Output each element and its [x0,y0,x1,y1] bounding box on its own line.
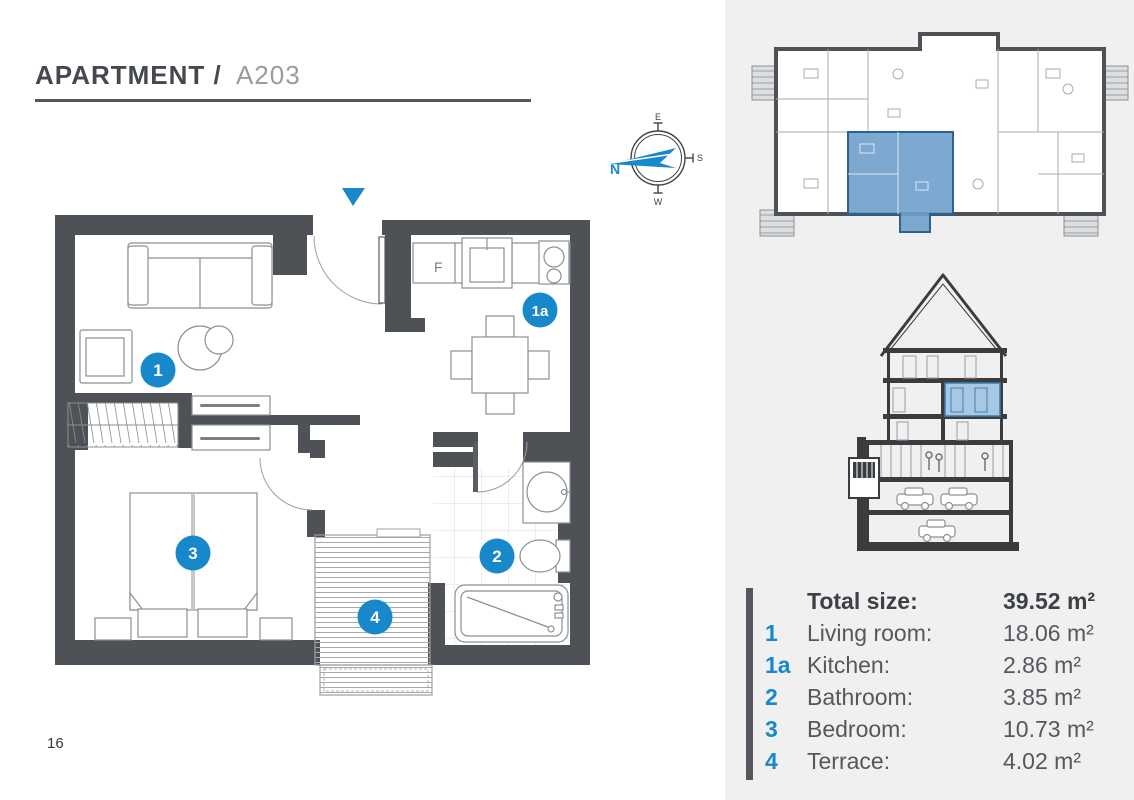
page-title-main: APARTMENT / [35,60,222,90]
armchair [80,330,132,383]
legend-label: Terrace: [807,748,1003,775]
building-floor-overview [748,14,1132,242]
brochure-page: APARTMENT / A203 16 E S W N [0,0,1134,800]
compass-west-label: W [654,197,663,207]
wardrobe [68,403,178,447]
badge-bathroom-label: 2 [492,547,501,566]
legend-num: 2 [765,684,807,711]
legend-row-bathroom: 2 Bathroom: 3.85 m² [765,684,1134,716]
page-title: APARTMENT / A203 [35,60,301,91]
legend-value: 10.73 m² [1003,716,1134,743]
bathtub [455,585,568,642]
page-number: 16 [47,735,64,752]
highlighted-unit [848,132,953,232]
stove [539,241,569,284]
parked-car [919,520,955,542]
legend-header-row: Total size: 39.52 m² [765,588,1134,620]
title-underline [35,99,531,102]
fridge-label: F [434,259,443,275]
nightstand-right [260,618,292,640]
legend-table: Total size: 39.52 m² 1 Living room: 18.0… [746,588,1134,780]
coffee-table-small [205,326,233,354]
terrace-threshold [377,529,420,537]
roof [881,275,1006,356]
building-cross-section [845,262,1030,560]
kitchen-sink [462,238,512,288]
legend-num: 1 [765,620,807,647]
bathroom-sink [523,462,570,523]
legend-label: Bedroom: [807,716,1003,743]
person-figure [982,453,988,471]
parked-car [897,488,933,510]
legend-row-kitchen: 1a Kitchen: 2.86 m² [765,652,1134,684]
toilet [520,540,570,572]
legend-num: 3 [765,716,807,743]
nightstand-left [95,618,131,640]
parked-car [941,488,977,510]
bedroom-door-arc [260,458,312,510]
page-title-unit: A203 [236,60,301,90]
entrance-marker-icon [342,188,365,206]
compass-east-label: E [655,112,661,122]
side-annex [849,458,879,498]
badge-terrace-label: 4 [370,608,380,627]
person-figure [926,452,932,470]
bathroom-door-leaf [473,442,478,492]
legend-label: Kitchen: [807,652,1003,679]
apartment-floor-plan: F [50,180,595,705]
dining-set [451,316,549,414]
legend-num: 1a [765,652,807,679]
legend-num: 4 [765,748,807,775]
legend-value: 18.06 m² [1003,620,1134,647]
legend-value: 2.86 m² [1003,652,1134,679]
sofa [128,243,272,308]
legend-value: 4.02 m² [1003,748,1134,775]
highlighted-floor [945,383,1000,416]
legend-row-living-room: 1 Living room: 18.06 m² [765,620,1134,652]
legend-value: 3.85 m² [1003,684,1134,711]
badge-bedroom-label: 3 [188,544,197,563]
legend-total-value: 39.52 m² [1003,588,1134,615]
legend-label: Bathroom: [807,684,1003,711]
legend-total-label: Total size: [807,588,1003,615]
entrance-door-leaf [379,237,385,303]
compass-north-label: N [610,161,620,177]
compass-south-label: S [697,153,703,163]
compass-icon: E S W N [610,110,710,210]
badge-living-room-label: 1 [153,361,162,380]
legend-row-bedroom: 3 Bedroom: 10.73 m² [765,716,1134,748]
legend-row-terrace: 4 Terrace: 4.02 m² [765,748,1134,780]
entrance-door-arc [314,236,382,304]
person-figure [936,454,942,472]
badge-kitchen-label: 1a [532,303,549,320]
legend-label: Living room: [807,620,1003,647]
